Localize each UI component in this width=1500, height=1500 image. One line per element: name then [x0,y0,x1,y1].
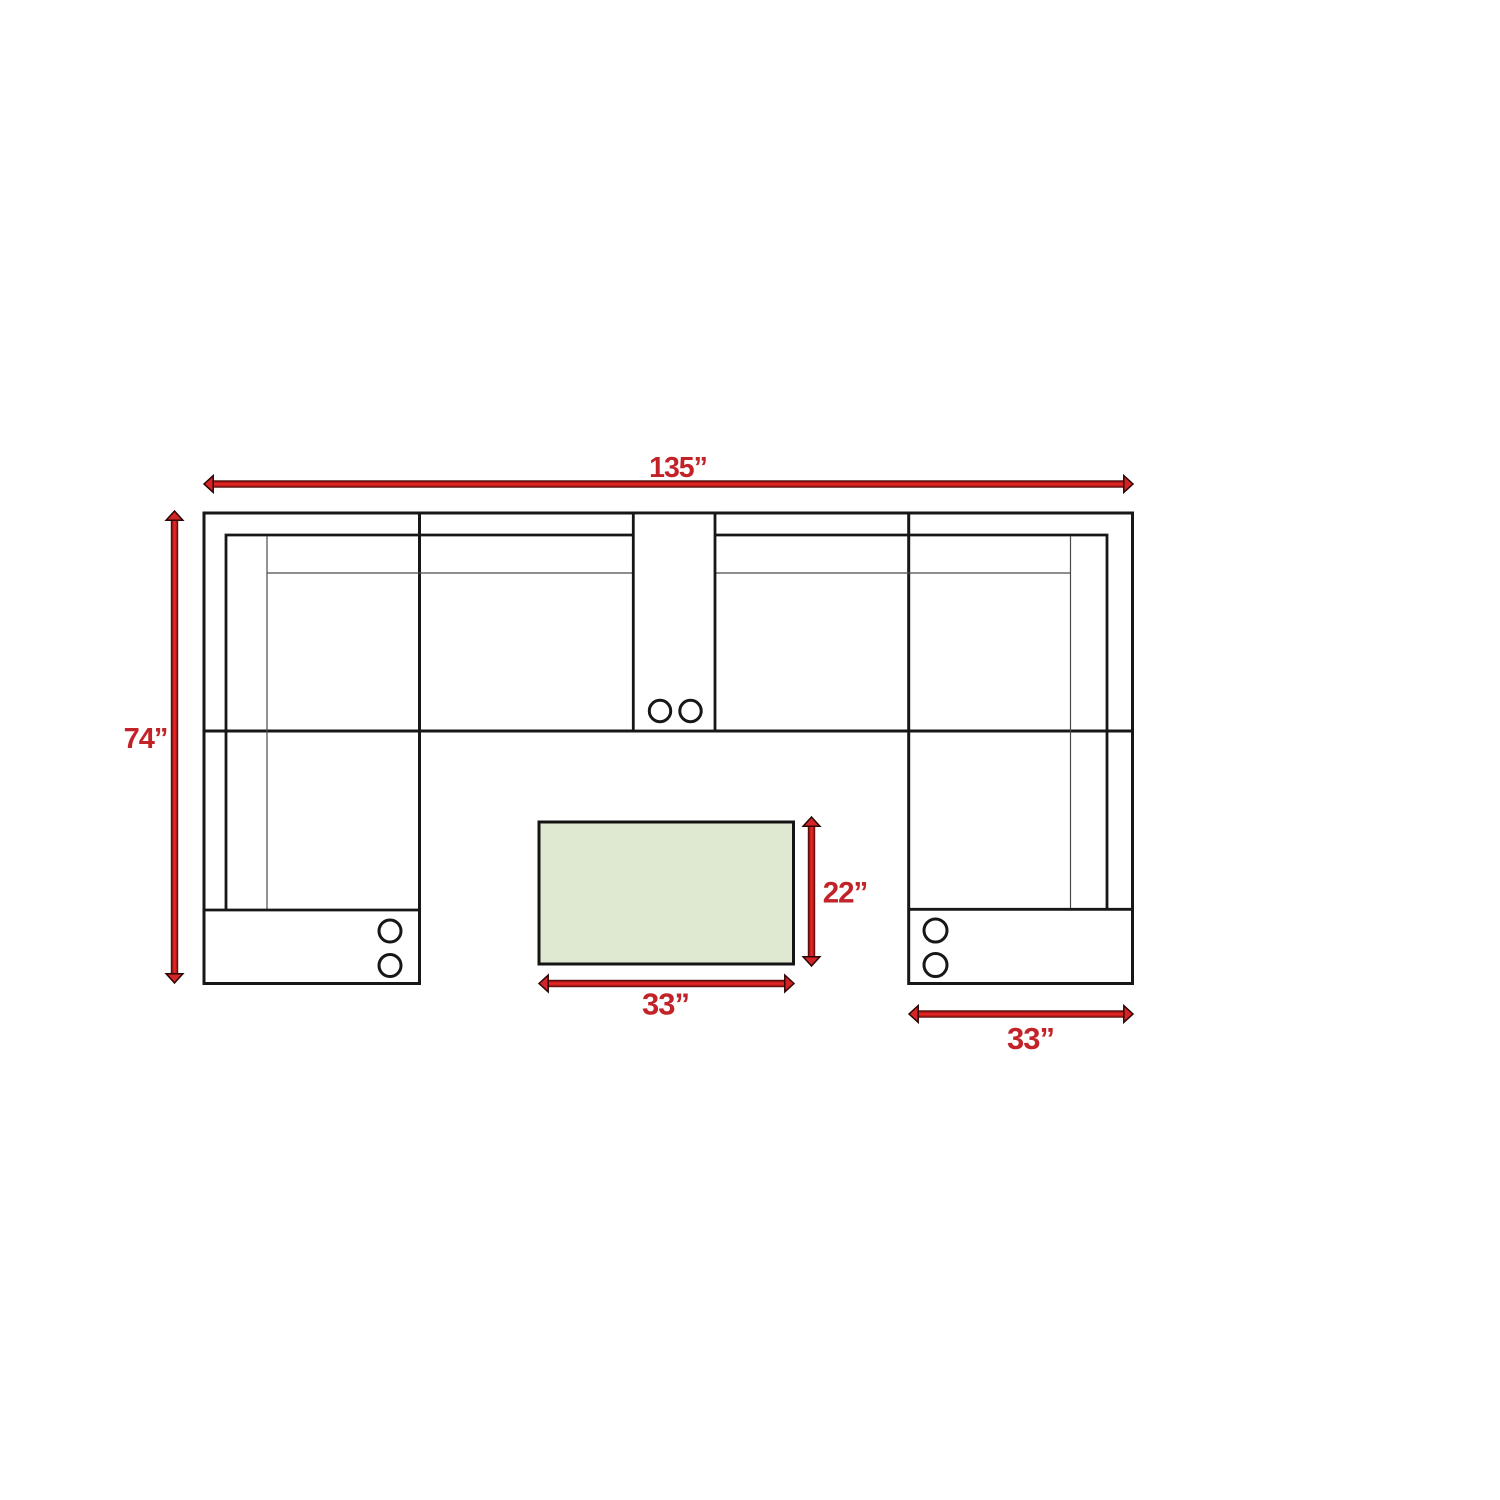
svg-text:135”: 135” [649,452,707,484]
svg-text:22”: 22” [823,877,868,910]
svg-text:33”: 33” [642,987,689,1022]
svg-text:74”: 74” [124,723,168,755]
svg-text:33”: 33” [1007,1021,1054,1056]
